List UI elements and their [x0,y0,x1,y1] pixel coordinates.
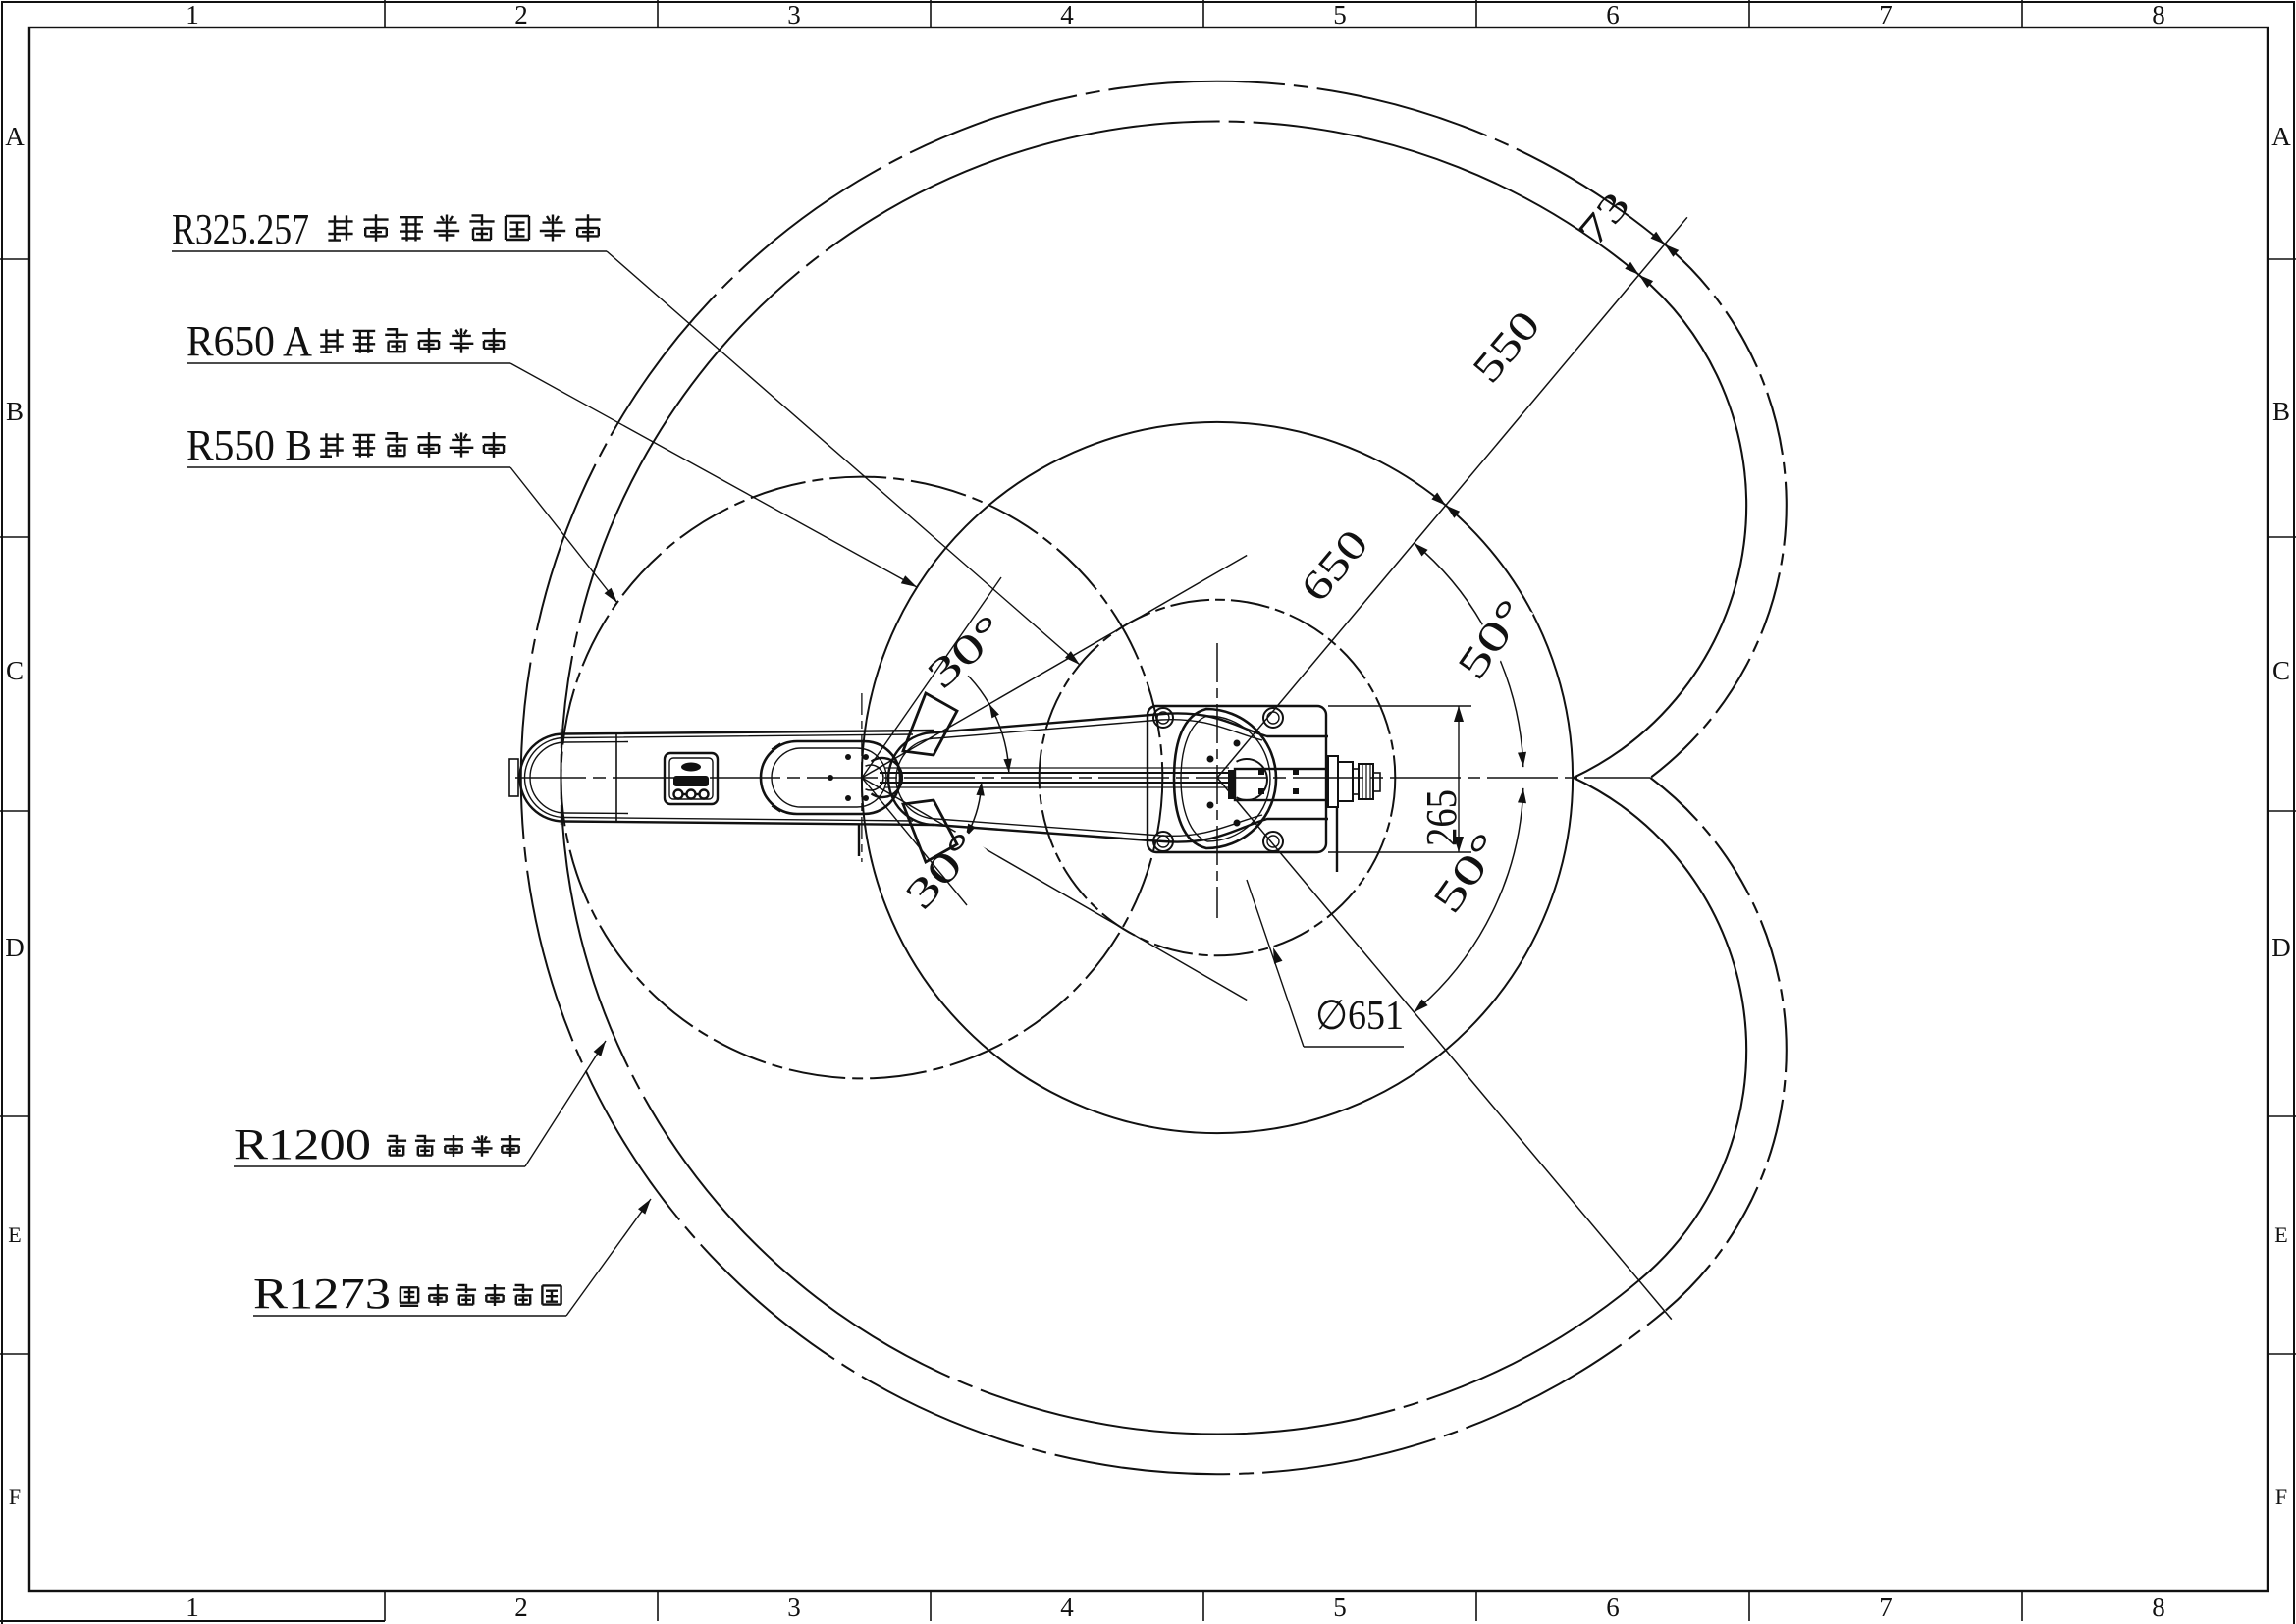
svg-text:R1273: R1273 [253,1270,391,1318]
svg-text:A: A [2271,122,2291,151]
svg-text:E: E [8,1222,21,1247]
svg-text:3: 3 [787,1593,801,1622]
svg-text:4: 4 [1060,1593,1074,1622]
svg-text:B: B [2272,397,2290,426]
svg-text:F: F [9,1485,21,1509]
svg-text:E: E [2274,1222,2287,1247]
svg-text:5: 5 [1333,0,1347,29]
svg-text:∅651: ∅651 [1315,994,1404,1039]
svg-text:4: 4 [1060,0,1074,29]
svg-text:2: 2 [514,0,528,29]
svg-text:A: A [5,122,25,151]
svg-text:R650 A: R650 A [187,317,312,365]
svg-text:R1200: R1200 [234,1120,371,1168]
svg-text:1: 1 [186,0,199,29]
svg-text:C: C [6,656,24,685]
svg-text:1: 1 [186,1593,199,1622]
svg-text:F: F [2275,1485,2287,1509]
svg-text:265: 265 [1417,789,1466,846]
svg-text:R550 B: R550 B [187,421,312,469]
svg-text:D: D [2271,933,2291,962]
svg-text:8: 8 [2152,1593,2165,1622]
svg-text:2: 2 [514,1593,528,1622]
svg-text:D: D [5,933,25,962]
svg-text:3: 3 [787,0,801,29]
svg-text:8: 8 [2152,0,2165,29]
svg-text:5: 5 [1333,1593,1347,1622]
svg-text:R325.257: R325.257 [172,205,309,253]
svg-text:6: 6 [1606,0,1620,29]
svg-text:B: B [6,397,24,426]
svg-text:C: C [2272,656,2290,685]
svg-text:7: 7 [1879,0,1893,29]
svg-text:7: 7 [1879,1593,1893,1622]
svg-text:6: 6 [1606,1593,1620,1622]
